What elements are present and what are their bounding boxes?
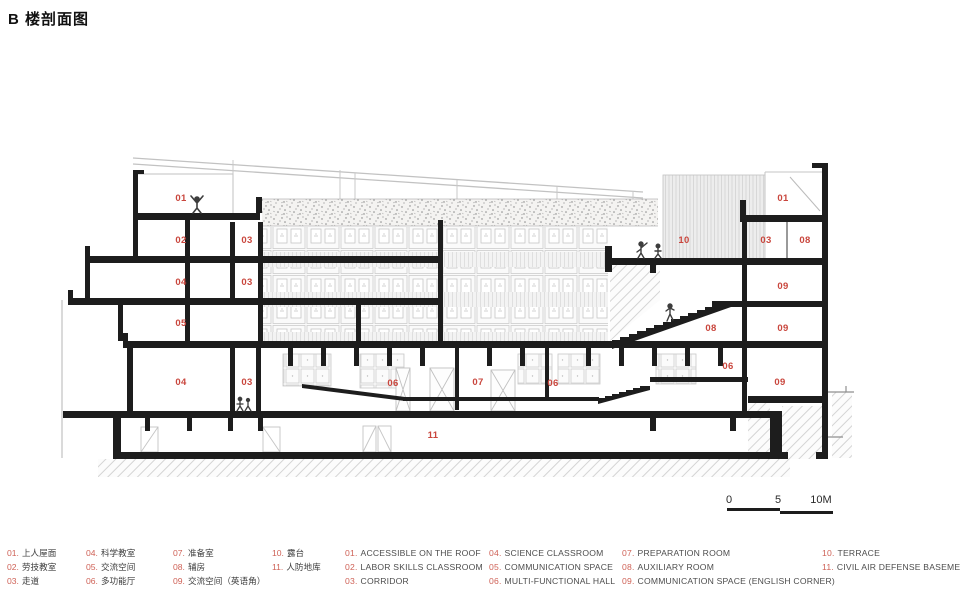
room-label-10: 10 xyxy=(678,235,689,246)
legend-cn-col-3: 07.准备室 08.辅房 09.交流空间（英语角） xyxy=(173,546,265,588)
legend-item: 05.COMMUNICATION SPACE xyxy=(489,560,615,574)
legend-en-col-2: 04.SCIENCE CLASSROOM 05.COMMUNICATION SP… xyxy=(489,546,615,588)
room-label-04b: 04 xyxy=(175,377,187,388)
legend-item: 11.CIVIL AIR DEFENSE BASEMENTS xyxy=(822,560,960,574)
room-label-09b: 09 xyxy=(777,323,788,334)
legend-en-col-3: 07.PREPARATION ROOM 08.AUXILIARY ROOM 09… xyxy=(622,546,835,588)
scale-0: 0 xyxy=(726,494,732,506)
room-label-03d: 03 xyxy=(760,235,771,246)
legend-item: 06.多功能厅 xyxy=(86,574,135,588)
room-label-07: 07 xyxy=(472,377,483,388)
room-label-02: 02 xyxy=(175,235,186,246)
legend-item: 03.走道 xyxy=(7,574,56,588)
room-label-04: 04 xyxy=(175,277,187,288)
page-title: B 楼剖面图 xyxy=(8,8,89,29)
legend-item: 02.LABOR SKILLS CLASSROOM xyxy=(345,560,483,574)
scale-10m: 10M xyxy=(810,494,831,506)
room-label-09c: 09 xyxy=(774,377,785,388)
room-label-05: 05 xyxy=(175,318,187,329)
legend-item: 10.露台 xyxy=(272,546,321,560)
room-label-03b: 03 xyxy=(241,277,252,288)
room-label-08: 08 xyxy=(799,235,810,246)
legend: 01.上人屋面 02.劳技教室 03.走道 04.科学教室 05.交流空间 06… xyxy=(0,546,960,606)
section-drawing-sheet: B 楼剖面图 xyxy=(0,0,960,606)
room-label-11: 11 xyxy=(428,430,439,441)
room-label-06: 06 xyxy=(387,378,398,389)
scale-bar: 0 5 10M xyxy=(726,494,833,514)
figure-on-stair xyxy=(666,304,674,321)
figure-corridor-pair xyxy=(237,397,251,411)
building-section-svg: 01 02 03 04 03 05 04 03 06 07 06 11 10 0… xyxy=(0,0,960,606)
legend-item: 07.PREPARATION ROOM xyxy=(622,546,835,560)
legend-item: 07.准备室 xyxy=(173,546,265,560)
legend-item: 01.上人屋面 xyxy=(7,546,56,560)
legend-item: 02.劳技教室 xyxy=(7,560,56,574)
legend-en-col-4: 10.TERRACE 11.CIVIL AIR DEFENSE BASEMENT… xyxy=(822,546,960,574)
legend-item: 09.COMMUNICATION SPACE (ENGLISH CORNER) xyxy=(622,574,835,588)
room-label-01b: 01 xyxy=(777,193,789,204)
room-label-08b: 08 xyxy=(705,323,716,334)
legend-item: 11.人防地库 xyxy=(272,560,321,574)
room-label-09: 09 xyxy=(777,281,788,292)
legend-item: 08.AUXILIARY ROOM xyxy=(622,560,835,574)
room-label-03c: 03 xyxy=(241,377,252,388)
legend-item: 10.TERRACE xyxy=(822,546,960,560)
legend-item: 03.CORRIDOR xyxy=(345,574,483,588)
legend-en-col-1: 01.ACCESSIBLE ON THE ROOF 02.LABOR SKILL… xyxy=(345,546,483,588)
legend-item: 09.交流空间（英语角） xyxy=(173,574,265,588)
legend-item: 04.SCIENCE CLASSROOM xyxy=(489,546,615,560)
legend-item: 01.ACCESSIBLE ON THE ROOF xyxy=(345,546,483,560)
legend-cn-col-4: 10.露台 11.人防地库 xyxy=(272,546,321,574)
legend-item: 08.辅房 xyxy=(173,560,265,574)
legend-item: 06.MULTI-FUNCTIONAL HALL xyxy=(489,574,615,588)
room-label-06b: 06 xyxy=(547,378,558,389)
room-label-01: 01 xyxy=(175,193,187,204)
scale-5: 5 xyxy=(775,494,781,506)
legend-item: 05.交流空间 xyxy=(86,560,135,574)
figure-roof-arms-up xyxy=(191,196,203,213)
legend-item: 04.科学教室 xyxy=(86,546,135,560)
figure-terrace-pair xyxy=(637,242,661,258)
room-label-06c: 06 xyxy=(722,361,733,372)
legend-cn-col-2: 04.科学教室 05.交流空间 06.多功能厅 xyxy=(86,546,135,588)
room-label-03: 03 xyxy=(241,235,252,246)
legend-cn-col-1: 01.上人屋面 02.劳技教室 03.走道 xyxy=(7,546,56,588)
